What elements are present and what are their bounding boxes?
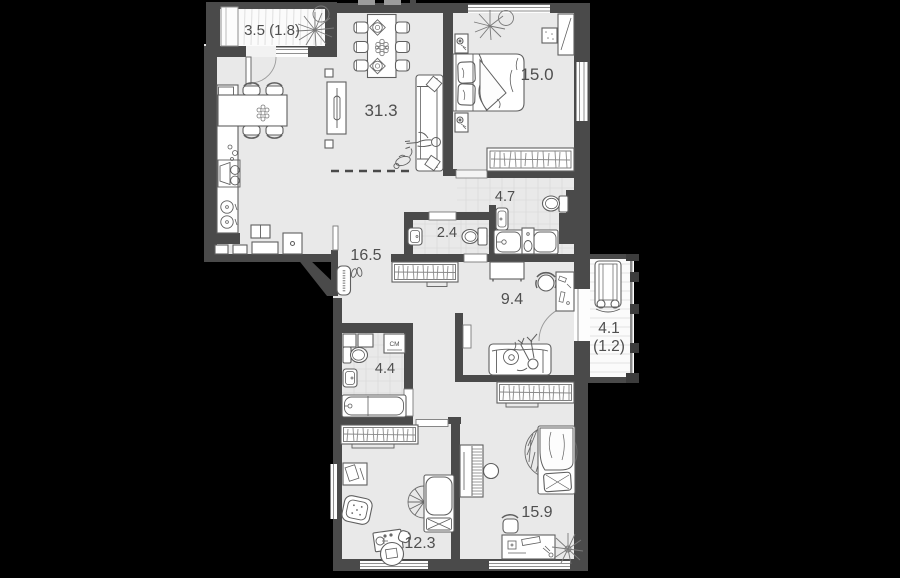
svg-text:СМ: СМ [389,341,399,348]
svg-text:4.1: 4.1 [598,320,620,337]
svg-text:4.4: 4.4 [375,361,395,377]
svg-text:9.4: 9.4 [501,291,523,308]
svg-text:3.5 (1.8): 3.5 (1.8) [244,22,300,39]
svg-text:15.9: 15.9 [521,504,552,521]
svg-text:2.4: 2.4 [437,225,457,241]
svg-text:4.7: 4.7 [495,189,515,205]
svg-text:16.5: 16.5 [350,247,381,264]
svg-text:31.3: 31.3 [364,101,397,120]
svg-text:(1.2): (1.2) [593,338,625,355]
svg-text:15.0: 15.0 [520,65,553,84]
svg-text:12.3: 12.3 [404,535,435,552]
